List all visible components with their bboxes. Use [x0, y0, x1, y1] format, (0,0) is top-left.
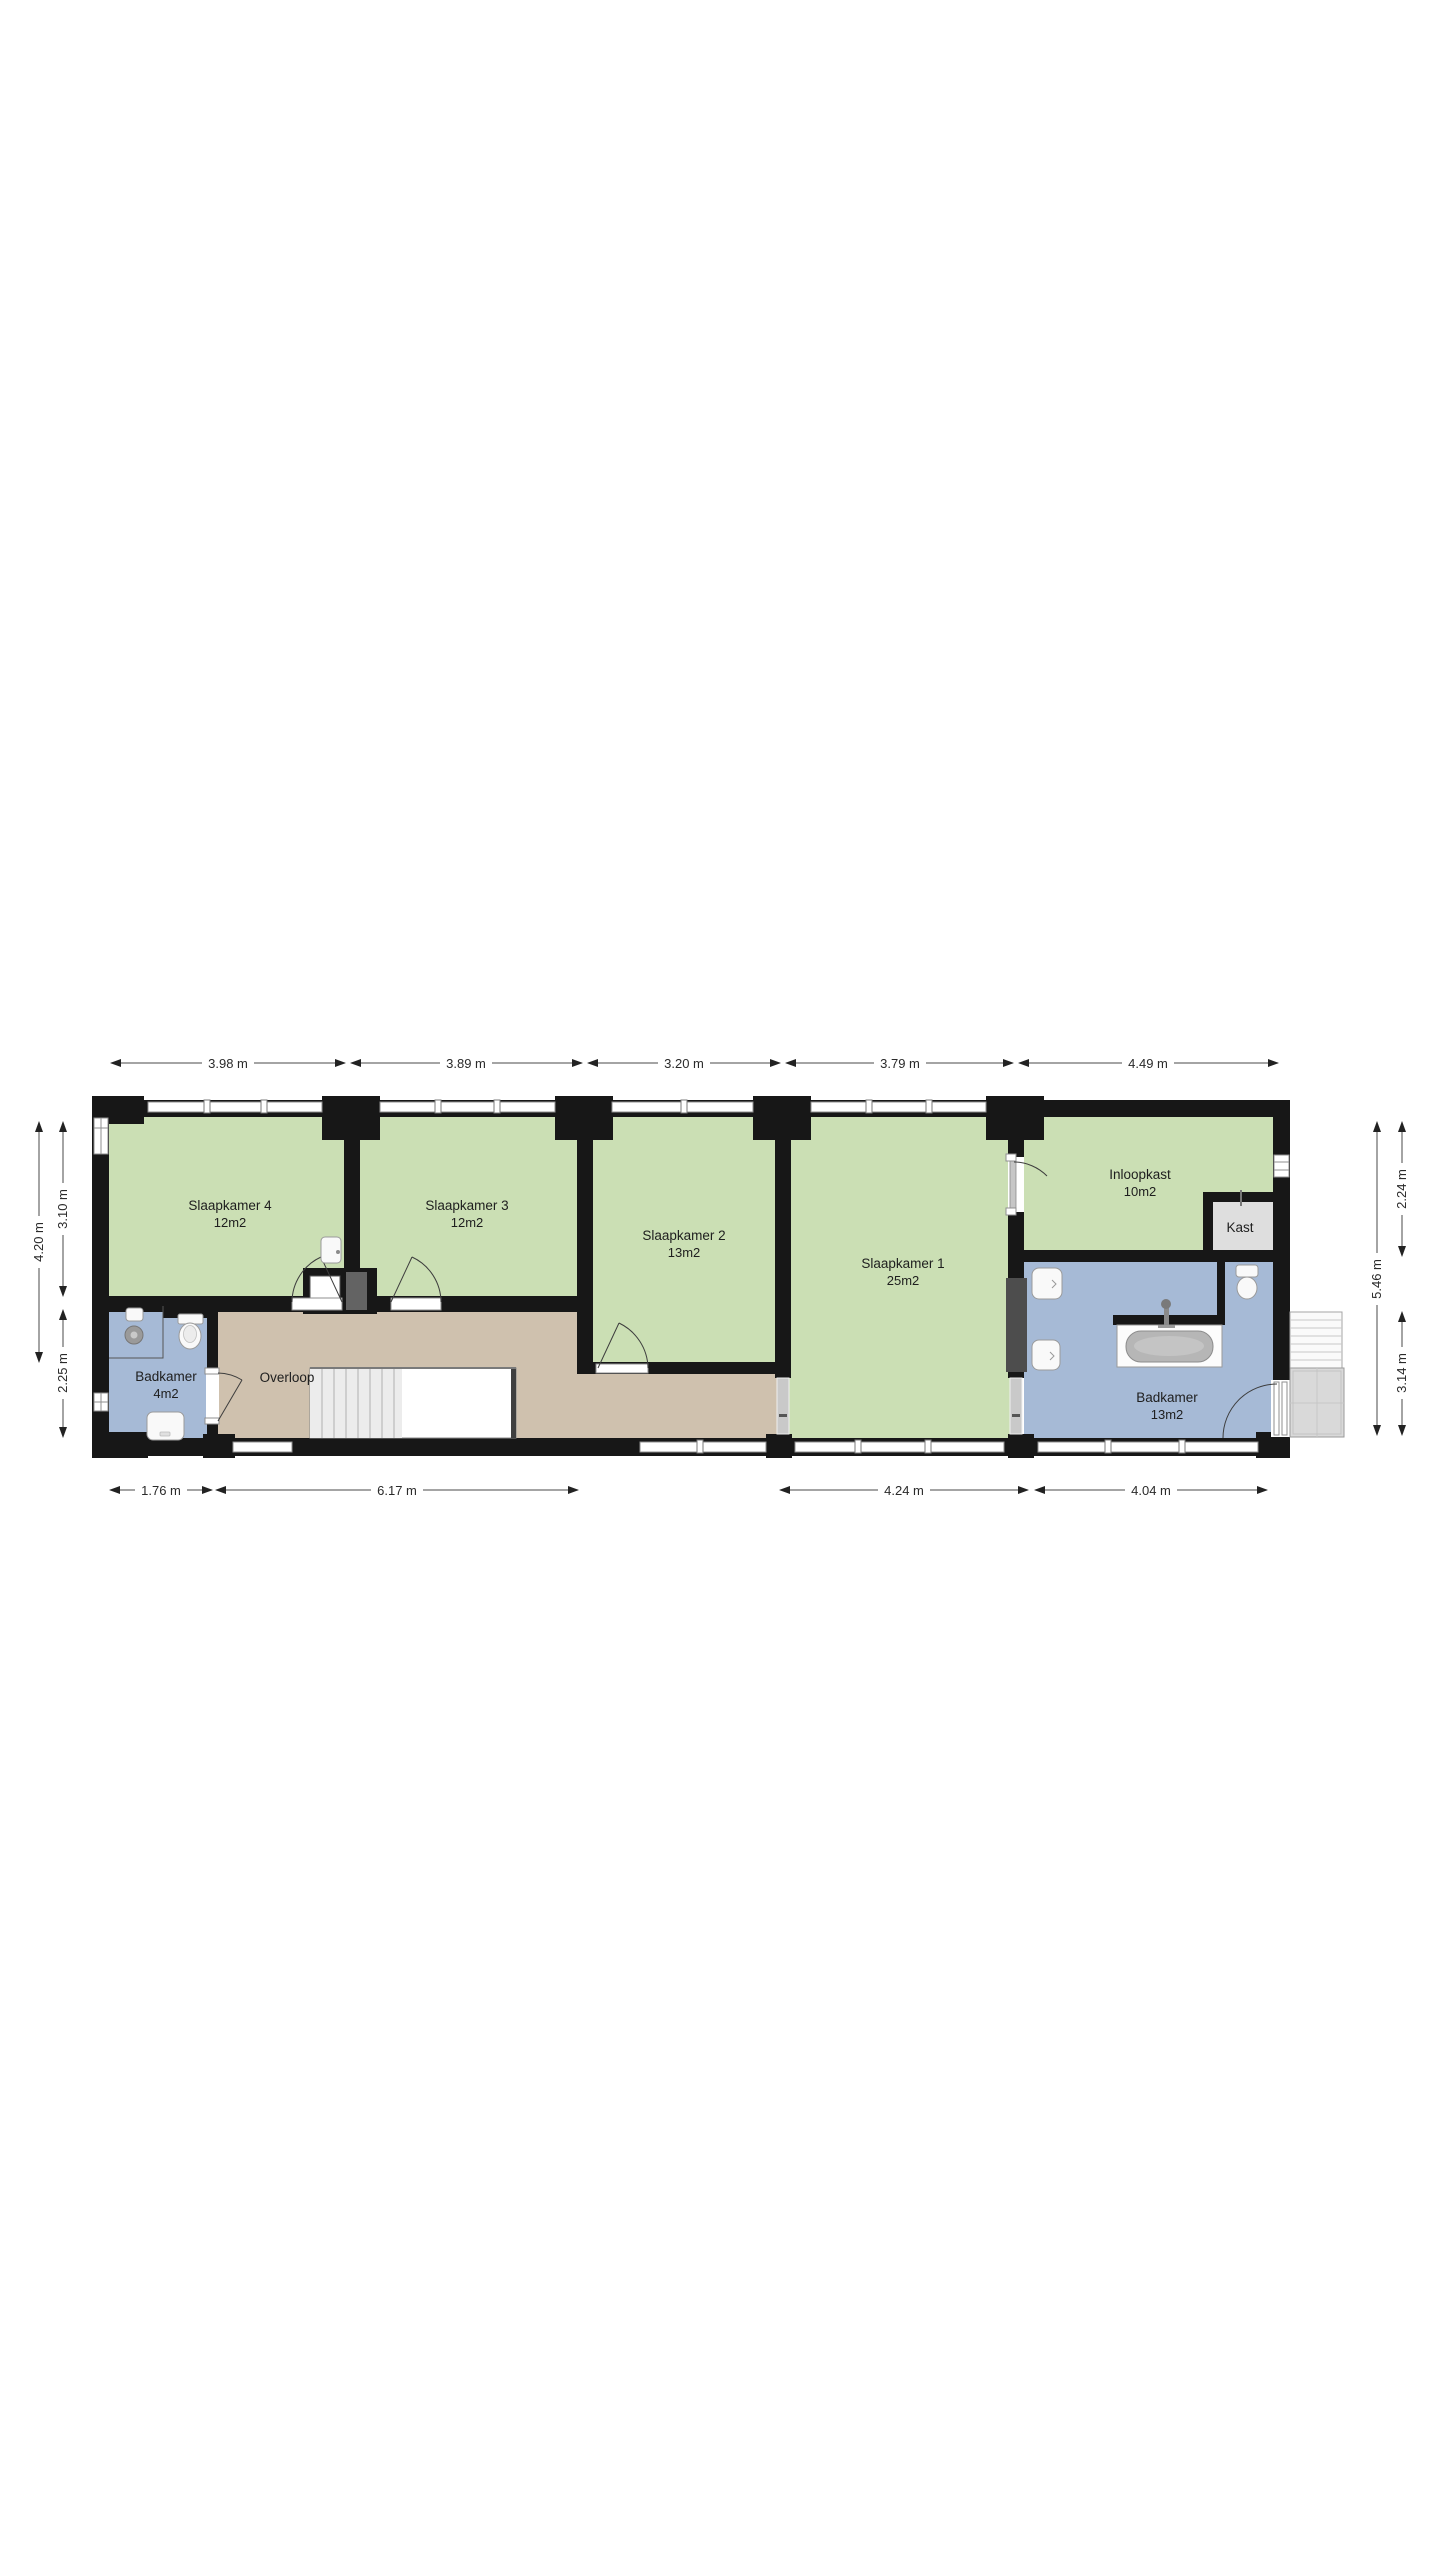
window-left-bottom	[94, 1393, 108, 1411]
window-tick	[435, 1100, 441, 1113]
window-tick	[1105, 1440, 1111, 1453]
dim-label: 4.49 m	[1128, 1056, 1168, 1071]
window-tick	[494, 1100, 500, 1113]
label-badkamer-groot-area: 13m2	[1151, 1407, 1184, 1422]
window-tick	[855, 1440, 861, 1453]
dimension-top-0: 3.98 m	[111, 1055, 345, 1071]
dimension-bottom-0: 1.76 m	[110, 1482, 212, 1498]
window-tick	[926, 1100, 932, 1113]
label-slaapkamer-1-area: 25m2	[887, 1273, 920, 1288]
dim-label: 4.20 m	[31, 1222, 46, 1262]
bathtub-icon	[1117, 1325, 1222, 1367]
dimension-bottom-1: 6.17 m	[216, 1482, 578, 1498]
dim-label: 5.46 m	[1369, 1259, 1384, 1299]
toilet-icon	[178, 1314, 203, 1349]
window-bottom-badkamer	[1038, 1442, 1258, 1452]
dim-label: 6.17 m	[377, 1483, 417, 1498]
wall-s2-s1	[775, 1117, 791, 1378]
wall-junction	[753, 1096, 811, 1140]
window-tick	[925, 1440, 931, 1453]
dimension-top-1: 3.89 m	[351, 1055, 582, 1071]
wall-kast-left	[1203, 1192, 1213, 1262]
external-staircase	[1290, 1312, 1344, 1437]
dim-label: 3.79 m	[880, 1056, 920, 1071]
sliding-door-panel	[1006, 1278, 1027, 1372]
dimension-right-top: 2.24 m	[1394, 1122, 1410, 1256]
dim-label: 2.24 m	[1394, 1169, 1409, 1209]
dim-label: 3.20 m	[664, 1056, 704, 1071]
wall-junction	[986, 1096, 1044, 1140]
dim-label: 2.25 m	[55, 1353, 70, 1393]
rooms	[109, 1117, 1273, 1442]
label-slaapkamer-4-area: 12m2	[214, 1215, 247, 1230]
dimension-bottom-2: 4.24 m	[780, 1482, 1028, 1498]
label-slaapkamer-2-area: 13m2	[668, 1245, 701, 1260]
window-tick	[697, 1440, 703, 1453]
label-slaapkamer-1: Slaapkamer 1	[861, 1256, 944, 1271]
wall-junction	[555, 1096, 613, 1140]
dim-label: 3.10 m	[55, 1189, 70, 1229]
window-tick	[261, 1100, 267, 1113]
dimension-right-bottom: 3.14 m	[1394, 1312, 1410, 1435]
label-slaapkamer-4: Slaapkamer 4	[188, 1198, 272, 1213]
dim-label: 1.76 m	[141, 1483, 181, 1498]
passage-overloop-s1	[777, 1378, 789, 1434]
passage-s1-badkamer	[1010, 1378, 1022, 1434]
window-tick	[204, 1100, 210, 1113]
wall-junction	[322, 1096, 380, 1140]
dimension-left-bottom: 2.25 m	[55, 1310, 71, 1437]
dimension-top-3: 3.79 m	[786, 1055, 1013, 1071]
window-left-top	[94, 1118, 108, 1154]
label-inloopkast: Inloopkast	[1109, 1167, 1171, 1182]
label-slaapkamer-2: Slaapkamer 2	[642, 1228, 725, 1243]
label-slaapkamer-3: Slaapkamer 3	[425, 1198, 508, 1213]
window-top-s1	[811, 1102, 986, 1112]
wall-s3-s2	[577, 1117, 593, 1374]
radiator-icon	[321, 1237, 341, 1263]
wall-junction	[1008, 1434, 1034, 1458]
dimension-left-total: 4.20 m	[31, 1122, 47, 1362]
dimension-bottom-3: 4.04 m	[1035, 1482, 1267, 1498]
window-bottom-overloop	[233, 1442, 292, 1452]
window-bottom-s1	[795, 1442, 1004, 1452]
window-right-inloopkast	[1274, 1155, 1289, 1177]
dim-label: 4.24 m	[884, 1483, 924, 1498]
window-top-s3	[380, 1102, 555, 1112]
dim-label: 3.89 m	[446, 1056, 486, 1071]
window-tick	[1179, 1440, 1185, 1453]
window-tick	[866, 1100, 872, 1113]
wall-kast-top	[1203, 1192, 1273, 1202]
wall-basin-icon	[1032, 1340, 1060, 1370]
kast-door-mark	[1240, 1190, 1242, 1206]
label-slaapkamer-3-area: 12m2	[451, 1215, 484, 1230]
toilet-icon	[1236, 1265, 1258, 1299]
wall-inloopkast-bottom	[1024, 1250, 1273, 1262]
floorplan-drawing: 3.98 m 3.89 m 3.20 m 3.79 m 4.49 m 1.76 …	[0, 1040, 1440, 1560]
dimension-right-total: 5.46 m	[1369, 1122, 1385, 1435]
wall-bath-alcove-vertical	[1217, 1262, 1225, 1320]
dim-label: 3.98 m	[208, 1056, 248, 1071]
label-inloopkast-area: 10m2	[1124, 1184, 1157, 1199]
dimension-left-top: 3.10 m	[55, 1122, 71, 1296]
label-badkamer-klein-area: 4m2	[153, 1386, 178, 1401]
window-top-s4	[148, 1102, 322, 1112]
staircase	[310, 1367, 516, 1438]
label-overloop: Overloop	[260, 1370, 315, 1385]
dimension-top-4: 4.49 m	[1019, 1055, 1278, 1071]
dimension-top-2: 3.20 m	[588, 1055, 780, 1071]
wall-junction	[766, 1434, 792, 1458]
shower-tray-icon	[147, 1412, 184, 1440]
dim-label: 4.04 m	[1131, 1483, 1171, 1498]
floorplan-page: 3.98 m 3.89 m 3.20 m 3.79 m 4.49 m 1.76 …	[0, 0, 1440, 2560]
dim-label: 3.14 m	[1394, 1353, 1409, 1393]
duct-inner-gray	[346, 1272, 367, 1310]
wall-junction	[203, 1434, 235, 1458]
label-badkamer-groot: Badkamer	[1136, 1390, 1198, 1405]
wall-junction	[92, 1432, 148, 1458]
label-badkamer-klein: Badkamer	[135, 1369, 197, 1384]
window-tick	[681, 1100, 687, 1113]
wall-basin-icon	[1032, 1268, 1062, 1299]
label-kast: Kast	[1226, 1220, 1253, 1235]
